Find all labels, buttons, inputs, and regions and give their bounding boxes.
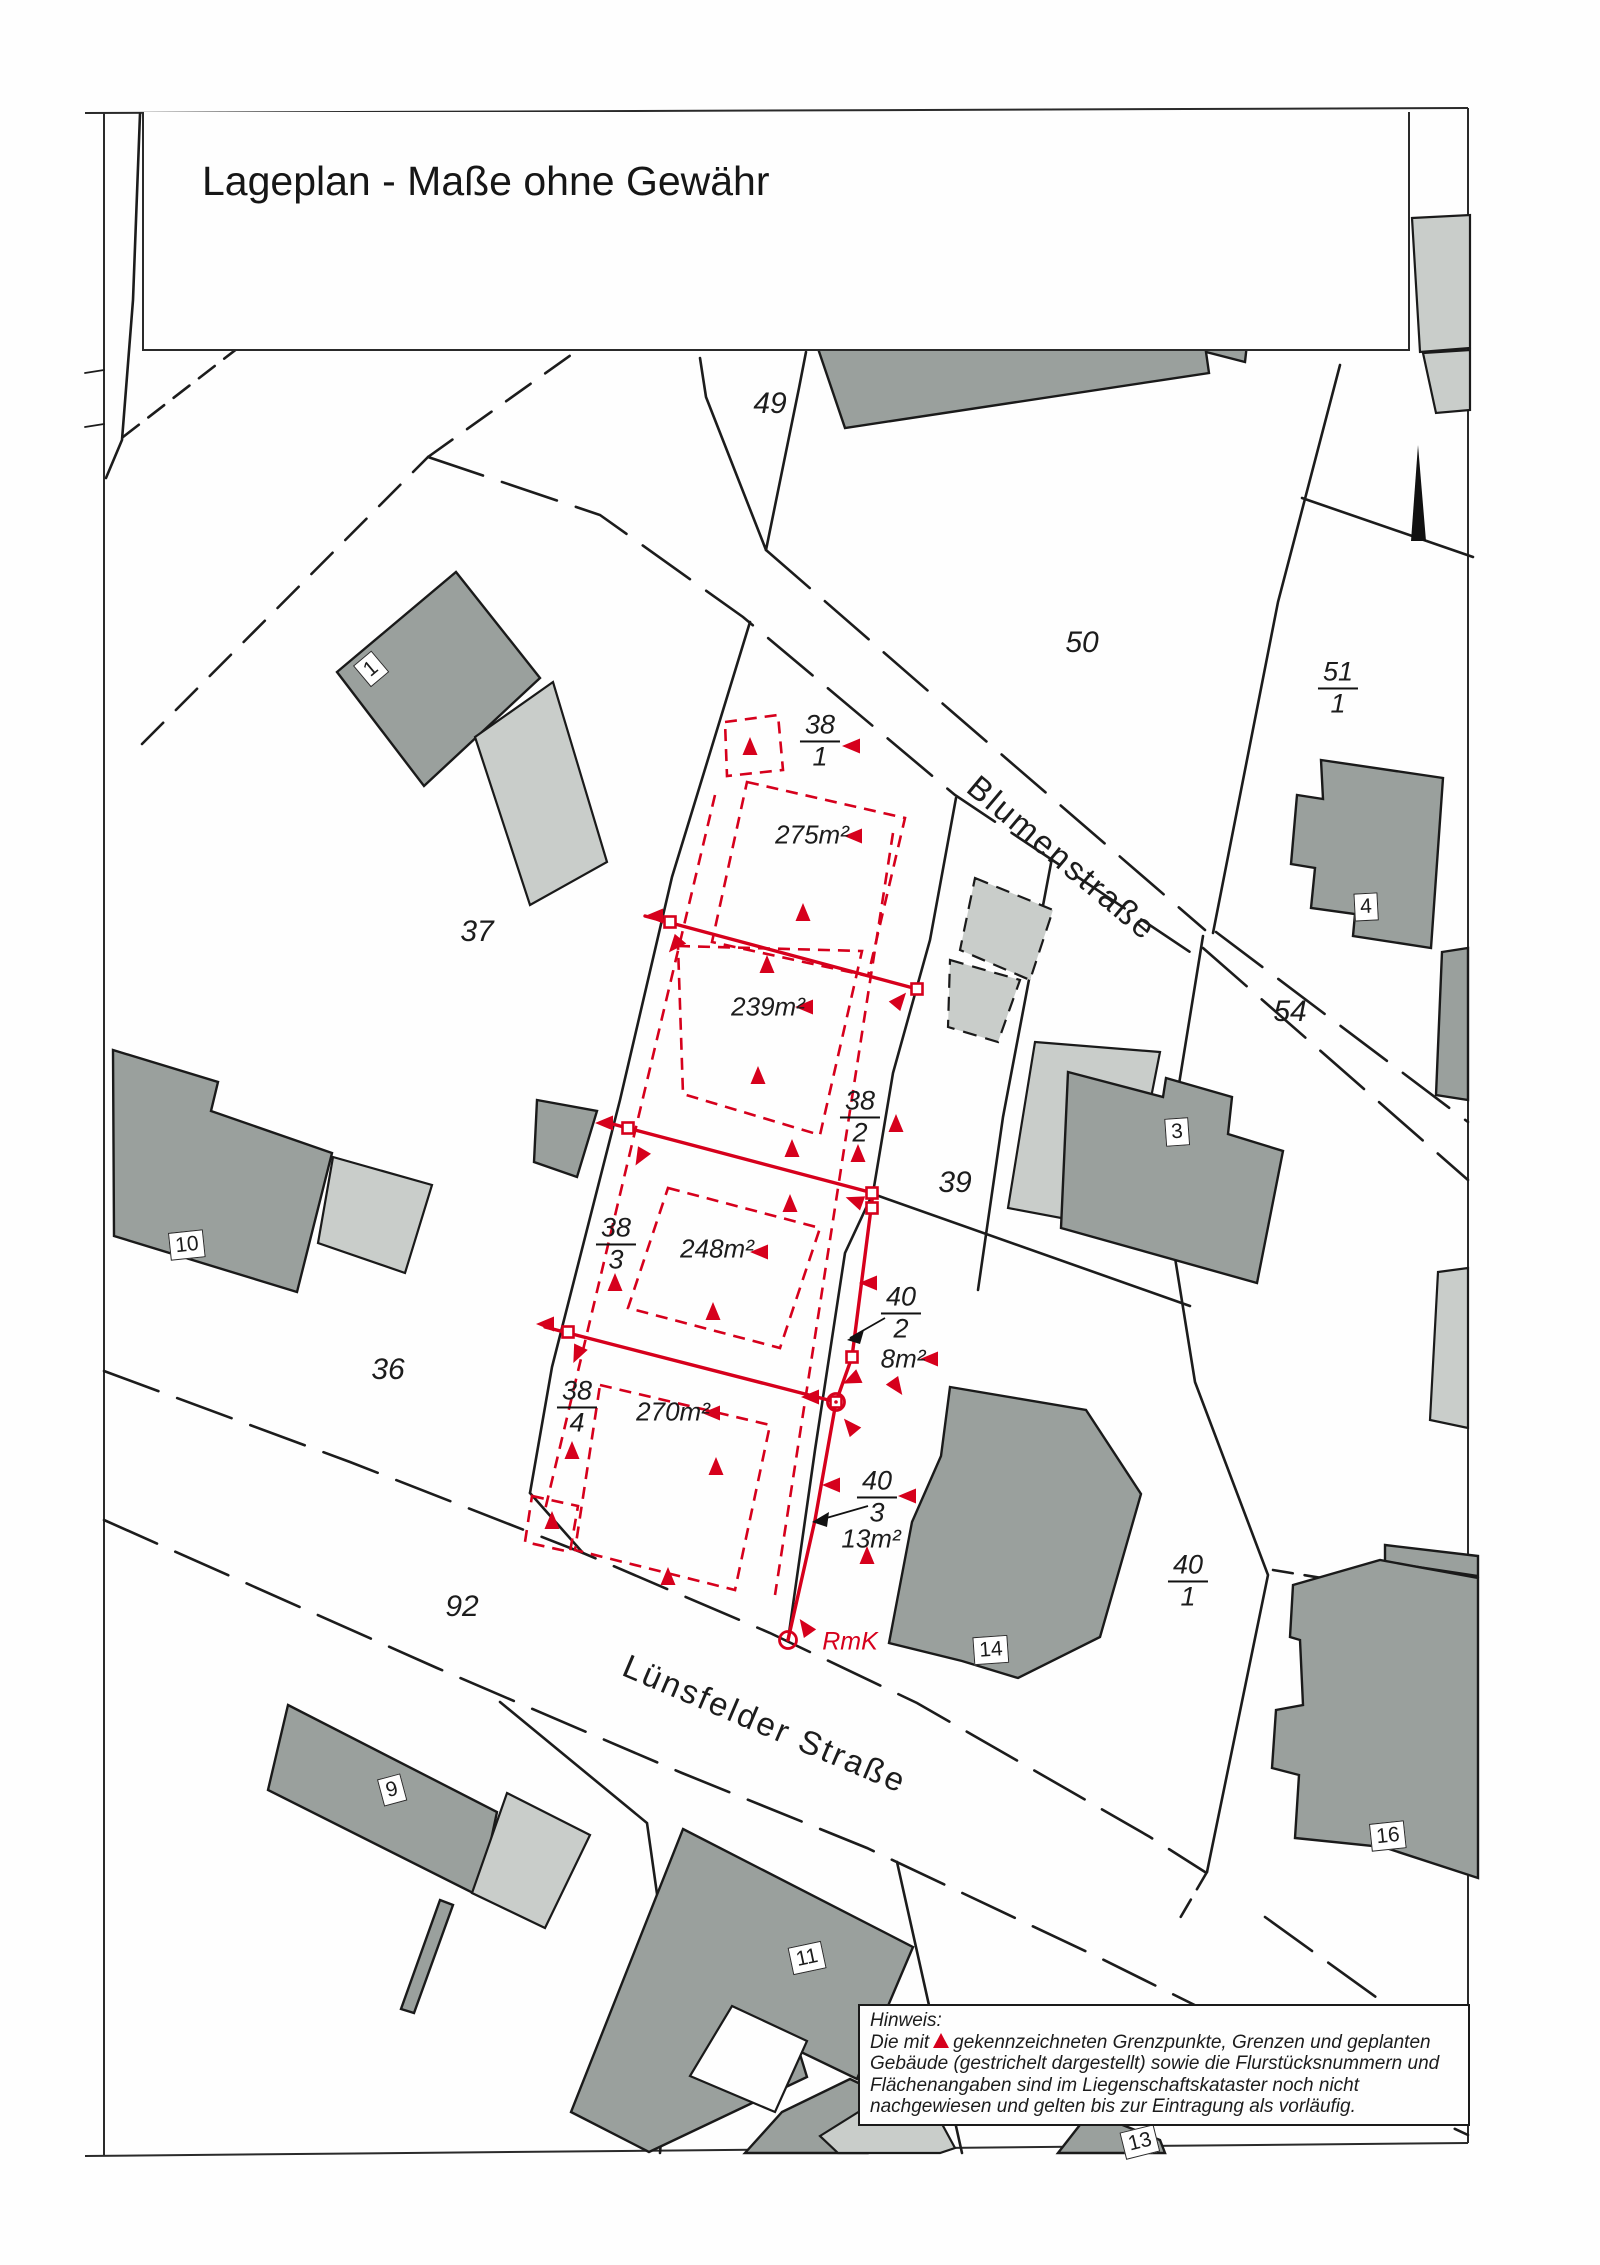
boundary-point-triangle-icon: [801, 1390, 819, 1405]
hinweis-line3: Flächenangaben sind im Liegenschaftskata…: [870, 2075, 1458, 2097]
boundary-point-triangle-icon: [796, 903, 811, 921]
parcel-number: 37: [460, 915, 493, 949]
area-label: 248m²: [680, 1234, 754, 1265]
boundary-marker-dot-icon: [834, 1400, 838, 1404]
boundary-point-triangle-icon: [565, 1441, 580, 1459]
hinweis-line2: Gebäude (gestrichelt dargestellt) sowie …: [870, 2053, 1458, 2075]
building-edge: [1423, 350, 1470, 413]
area-label: 13m²: [841, 1524, 900, 1555]
boundary-point-triangle-icon: [706, 1302, 721, 1320]
parcel-boundaries: [104, 114, 1473, 2153]
boundary-point-triangle-icon: [889, 988, 912, 1011]
boundary-marker-square-icon: [867, 1188, 878, 1199]
building-10-annex: [318, 1157, 432, 1273]
area-label: 275m²: [775, 820, 849, 851]
building-3: [1061, 1072, 1283, 1283]
page-title: Lageplan - Maße ohne Gewähr: [202, 158, 770, 205]
boundary-marker-square-icon: [563, 1327, 574, 1338]
boundary-marker-square-icon: [623, 1123, 634, 1134]
boundary-point-triangle-icon: [794, 1615, 817, 1638]
lageplan-page: Lageplan - Maße ohne Gewähr Blumenstraße…: [0, 0, 1600, 2265]
boundary-point-triangle-icon: [595, 1116, 613, 1131]
house-number: 16: [1369, 1820, 1407, 1852]
boundary-point-triangle-icon: [838, 1414, 861, 1437]
hinweis-line1: Die mitgekennzeichneten Grenzpunkte, Gre…: [870, 2032, 1458, 2054]
hinweis-box: Hinweis: Die mitgekennzeichneten Grenzpu…: [858, 2004, 1470, 2126]
house-number: 14: [972, 1635, 1009, 1665]
boundary-point-triangle-icon: [785, 1139, 800, 1157]
boundary-marker-square-icon: [847, 1352, 858, 1363]
boundary-point-triangle-icon: [608, 1273, 623, 1291]
garage: [534, 1100, 597, 1177]
triangle-icon: [933, 2033, 949, 2048]
boundary-point-triangle-icon: [760, 955, 775, 973]
parcel-fraction: 384: [557, 1377, 597, 1436]
boundary-point-triangle-icon: [536, 1317, 554, 1332]
title-box: Lageplan - Maße ohne Gewähr: [142, 112, 1410, 351]
area-label: 239m²: [731, 992, 805, 1023]
boundary-point-triangle-icon: [898, 1489, 916, 1504]
parcel-number: 39: [938, 1166, 971, 1200]
boundary-point-triangle-icon: [709, 1457, 724, 1475]
boundary-marker-square-icon: [867, 1203, 878, 1214]
building-edge: [1412, 215, 1470, 352]
hinweis-title: Hinweis:: [870, 2010, 1458, 2032]
house-number: 3: [1164, 1117, 1190, 1147]
boundary-point-triangle-icon: [783, 1194, 798, 1212]
outbuilding: [960, 878, 1053, 980]
building-14: [889, 1387, 1141, 1678]
boundary-point-triangle-icon: [629, 1146, 651, 1169]
boundary-point-triangle-icon: [661, 1567, 676, 1585]
boundary-point-triangle-icon: [645, 909, 663, 924]
house-number: 10: [168, 1229, 206, 1261]
boundary-point-triangle-icon: [842, 739, 860, 754]
outbuilding: [948, 960, 1020, 1042]
parcel-fraction: 382: [840, 1087, 880, 1146]
area-label: 270m²: [636, 1397, 710, 1428]
building-9-wing: [401, 1900, 453, 2013]
parcel-fraction: 383: [596, 1214, 636, 1273]
parcel-fraction: 403: [857, 1467, 897, 1526]
building-edge: [1430, 1268, 1468, 1428]
area-label: 8m²: [881, 1344, 926, 1375]
boundary-point-triangle-icon: [822, 1478, 840, 1493]
boundary-marker-dot-icon: [786, 1638, 790, 1642]
parcel-fraction: 381: [800, 711, 840, 770]
boundary-point-triangle-icon: [743, 737, 758, 755]
parcel-number: 49: [753, 387, 786, 421]
boundary-point-triangle-icon: [843, 1190, 865, 1210]
buildings-existing: [113, 215, 1478, 2153]
hinweis-line4: nachgewiesen und gelten bis zur Eintragu…: [870, 2096, 1458, 2118]
boundary-point-triangle-icon: [751, 1066, 766, 1084]
boundary-marker-square-icon: [665, 917, 676, 928]
building-edge: [1436, 948, 1468, 1100]
parcel-fraction: 402: [881, 1283, 921, 1342]
parcel-fraction: 511: [1318, 658, 1358, 717]
boundary-point-triangle-icon: [889, 1114, 904, 1132]
rmk-label: RmK: [822, 1628, 878, 1657]
boundary-point-triangle-icon: [886, 1376, 909, 1399]
parcel-number: 92: [445, 1590, 478, 1624]
boundary-marker-square-icon: [912, 984, 923, 995]
parcel-fraction: 401: [1168, 1551, 1208, 1610]
house-number: 4: [1353, 892, 1378, 921]
building-10: [113, 1050, 332, 1292]
parcel-number: 54: [1273, 995, 1306, 1029]
parcel-number: 36: [371, 1353, 404, 1387]
parcel-number: 50: [1065, 626, 1098, 660]
north-needle-icon: [1411, 445, 1426, 541]
